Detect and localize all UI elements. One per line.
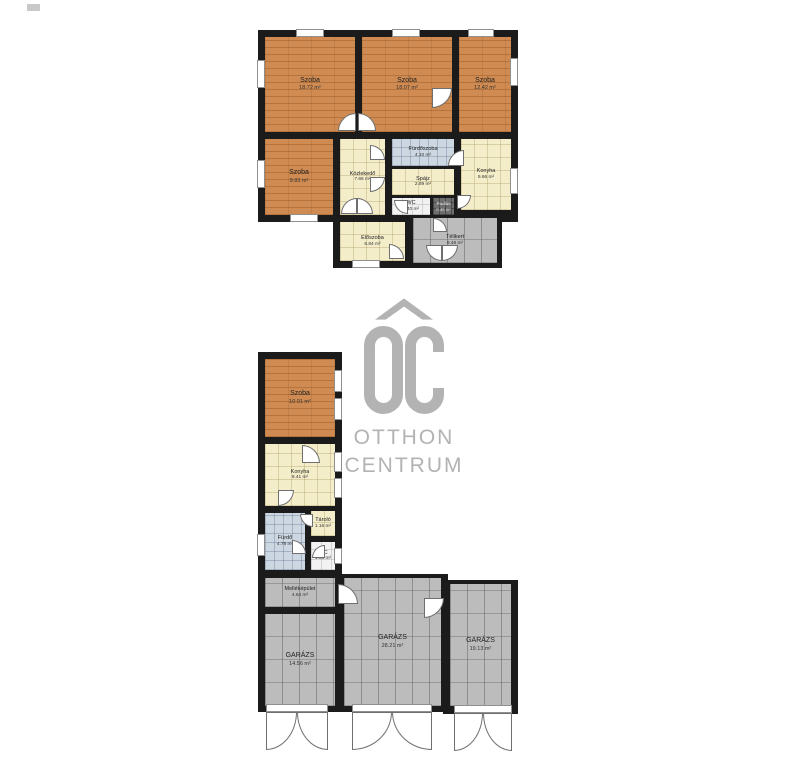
room-spajz: Spájz 2.89 m²	[392, 169, 454, 195]
window	[334, 370, 342, 392]
room-label: Szoba 9.93 m²	[289, 169, 309, 185]
room-area: 2.89 m²	[415, 182, 431, 188]
room-area: 18.07 m²	[396, 85, 418, 92]
garage-door-leaf	[454, 713, 483, 751]
room-label: Előszoba 6.84 m²	[361, 235, 384, 248]
room-area: 28.21 m²	[382, 643, 404, 650]
room-telikert: Télikert 9.48 m²	[413, 218, 497, 263]
room-label: Fürdőszoba 4.10 m²	[408, 146, 437, 159]
room-area: 9.93 m²	[290, 178, 309, 185]
room-name: GARÁZS	[378, 634, 407, 643]
window	[334, 548, 342, 564]
room-label: GARÁZS 14.56 m²	[286, 652, 315, 668]
room-label: Padlás 0.46 m²	[436, 201, 450, 212]
room-area: 4.64 m²	[292, 593, 308, 599]
room-name: Télikert	[446, 234, 464, 241]
room-padlas: Padlás 0.46 m²	[433, 198, 454, 215]
room-garazs-3: GARÁZS 19.13 m²	[450, 584, 511, 706]
room-area: 19.13 m²	[470, 646, 492, 653]
garage-door-leaf	[352, 712, 392, 750]
window	[392, 29, 420, 37]
room-label: GARÁZS 28.21 m²	[378, 634, 407, 650]
room-name: Szoba	[300, 77, 320, 86]
roof-chevron-icon	[375, 298, 433, 320]
room-label: Szoba 18.07 m²	[396, 77, 418, 93]
window	[296, 29, 324, 37]
room-area: 0.46 m²	[436, 207, 450, 212]
watermark-text-line2: CENTRUM	[345, 452, 464, 480]
garage-door-leaf	[266, 712, 297, 750]
room-label: Szoba 10.01 m²	[289, 390, 311, 406]
room-szoba-1: Szoba 18.72 m²	[265, 37, 355, 132]
room-area: 6.84 m²	[364, 242, 380, 248]
garage-door-leaf	[392, 712, 432, 750]
room-area: 1.16 m²	[315, 524, 331, 530]
watermark-logo: OTTHON CENTRUM	[338, 298, 470, 481]
room-name: GARÁZS	[466, 637, 495, 646]
room-label: Melléképület 4.64 m²	[285, 586, 316, 599]
room-label: Szoba 18.72 m²	[299, 77, 321, 93]
window	[334, 452, 342, 472]
window	[334, 478, 342, 498]
garage-door-opening	[454, 705, 512, 713]
room-area: 12.42 m²	[474, 85, 496, 92]
watermark-text-line1: OTTHON	[354, 424, 455, 452]
floorplan-canvas: Szoba 18.72 m² Szoba 18.07 m² Szoba 12.4…	[0, 0, 800, 771]
room-konyha-2: Konyha 8.41 m²	[265, 444, 335, 506]
room-label: GARÁZS 19.13 m²	[466, 637, 495, 653]
window	[257, 60, 265, 88]
room-area: 4.78 m²	[277, 542, 293, 548]
room-area: 4.10 m²	[415, 153, 431, 159]
room-area: 9.66 m²	[478, 175, 494, 181]
room-szoba-3: Szoba 12.42 m²	[459, 37, 511, 132]
room-area: 18.72 m²	[299, 85, 321, 92]
room-name: Szoba	[397, 77, 417, 86]
room-area: 14.56 m²	[289, 661, 311, 668]
window	[352, 260, 380, 268]
room-label: Konyha 9.66 m²	[477, 168, 496, 181]
room-name: Konyha	[477, 168, 496, 175]
room-garazs-1: GARÁZS 14.56 m²	[265, 614, 335, 706]
room-szoba-5: Szoba 10.01 m²	[265, 359, 335, 437]
garage-door-opening	[266, 704, 328, 712]
window	[468, 29, 494, 37]
window	[257, 534, 265, 556]
garage-door-leaf	[297, 712, 328, 750]
room-name: Melléképület	[285, 586, 316, 593]
room-label: Spájz 2.89 m²	[415, 176, 431, 189]
room-mellekepulet: Melléképület 4.64 m²	[265, 578, 335, 607]
room-furdoszoba: Fürdőszoba 4.10 m²	[392, 139, 454, 166]
room-label: Fürdő 4.78 m²	[277, 535, 293, 548]
room-area: 7.66 m²	[354, 177, 370, 183]
room-name: Szoba	[475, 77, 495, 86]
garage-door-opening	[352, 704, 432, 712]
window	[290, 214, 318, 222]
oc-monogram-icon	[364, 326, 444, 414]
room-name: Szoba	[289, 169, 309, 178]
room-label: Szoba 12.42 m²	[474, 77, 496, 93]
room-szoba-4: Szoba 9.93 m²	[265, 139, 333, 215]
room-szoba-2: Szoba 18.07 m²	[362, 37, 452, 132]
window	[510, 58, 518, 86]
window	[510, 168, 518, 194]
room-area: 8.41 m²	[292, 475, 308, 481]
room-name: Fürdő	[278, 535, 292, 542]
window	[334, 398, 342, 420]
room-name: Fürdőszoba	[408, 146, 437, 153]
room-name: Előszoba	[361, 235, 384, 242]
garage-door-leaf	[483, 713, 512, 751]
room-tarolo: Tároló 1.16 m²	[311, 511, 335, 536]
scan-artifact	[27, 4, 40, 11]
room-label: Konyha 8.41 m²	[291, 469, 310, 482]
room-label: Tároló 1.16 m²	[315, 517, 331, 530]
room-name: Szoba	[290, 390, 310, 399]
room-area: 10.01 m²	[289, 399, 311, 406]
room-name: GARÁZS	[286, 652, 315, 661]
window	[257, 160, 265, 188]
room-name: Tároló	[315, 517, 331, 524]
